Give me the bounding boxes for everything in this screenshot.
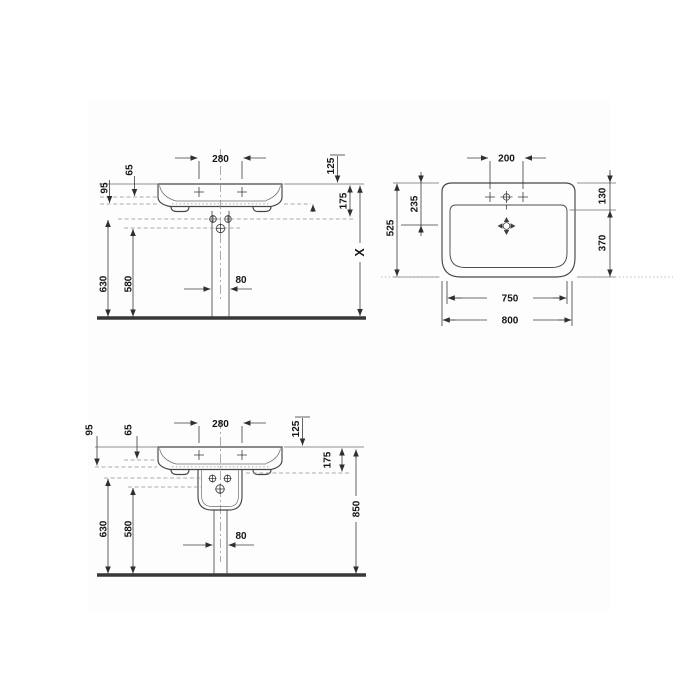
- dim-label-125: 125: [291, 420, 302, 437]
- dim-label-200: 200: [498, 154, 515, 165]
- dim-label-80: 80: [235, 275, 247, 286]
- dim-label-525: 525: [386, 219, 397, 236]
- dim-label-125: 125: [326, 157, 337, 174]
- dim-label-800: 800: [502, 316, 519, 327]
- drawing-area: [88, 98, 610, 612]
- dim-label-95: 95: [100, 182, 111, 194]
- dim-label-65: 65: [124, 424, 135, 436]
- dim-label-175: 175: [323, 451, 334, 468]
- dim-label-130: 130: [598, 187, 609, 204]
- dim-label-630: 630: [99, 275, 110, 292]
- dim-label-580: 580: [124, 520, 135, 537]
- dim-label-630: 630: [99, 520, 110, 537]
- dim-label-95: 95: [85, 424, 96, 436]
- dim-label-370: 370: [598, 234, 609, 251]
- dim-label-x: X: [353, 248, 367, 257]
- dim-label-750: 750: [502, 294, 519, 305]
- dim-label-80: 80: [235, 531, 247, 542]
- dim-label-850: 850: [352, 500, 363, 517]
- washbasin-technical-drawing: 280 125 175 95 65 630: [0, 0, 700, 700]
- dim-label-235: 235: [410, 195, 421, 212]
- dim-label-280: 280: [212, 154, 229, 165]
- dim-label-65: 65: [125, 164, 136, 176]
- dim-label-175: 175: [339, 192, 350, 209]
- dim-label-280: 280: [212, 419, 229, 430]
- dim-label-580: 580: [124, 275, 135, 292]
